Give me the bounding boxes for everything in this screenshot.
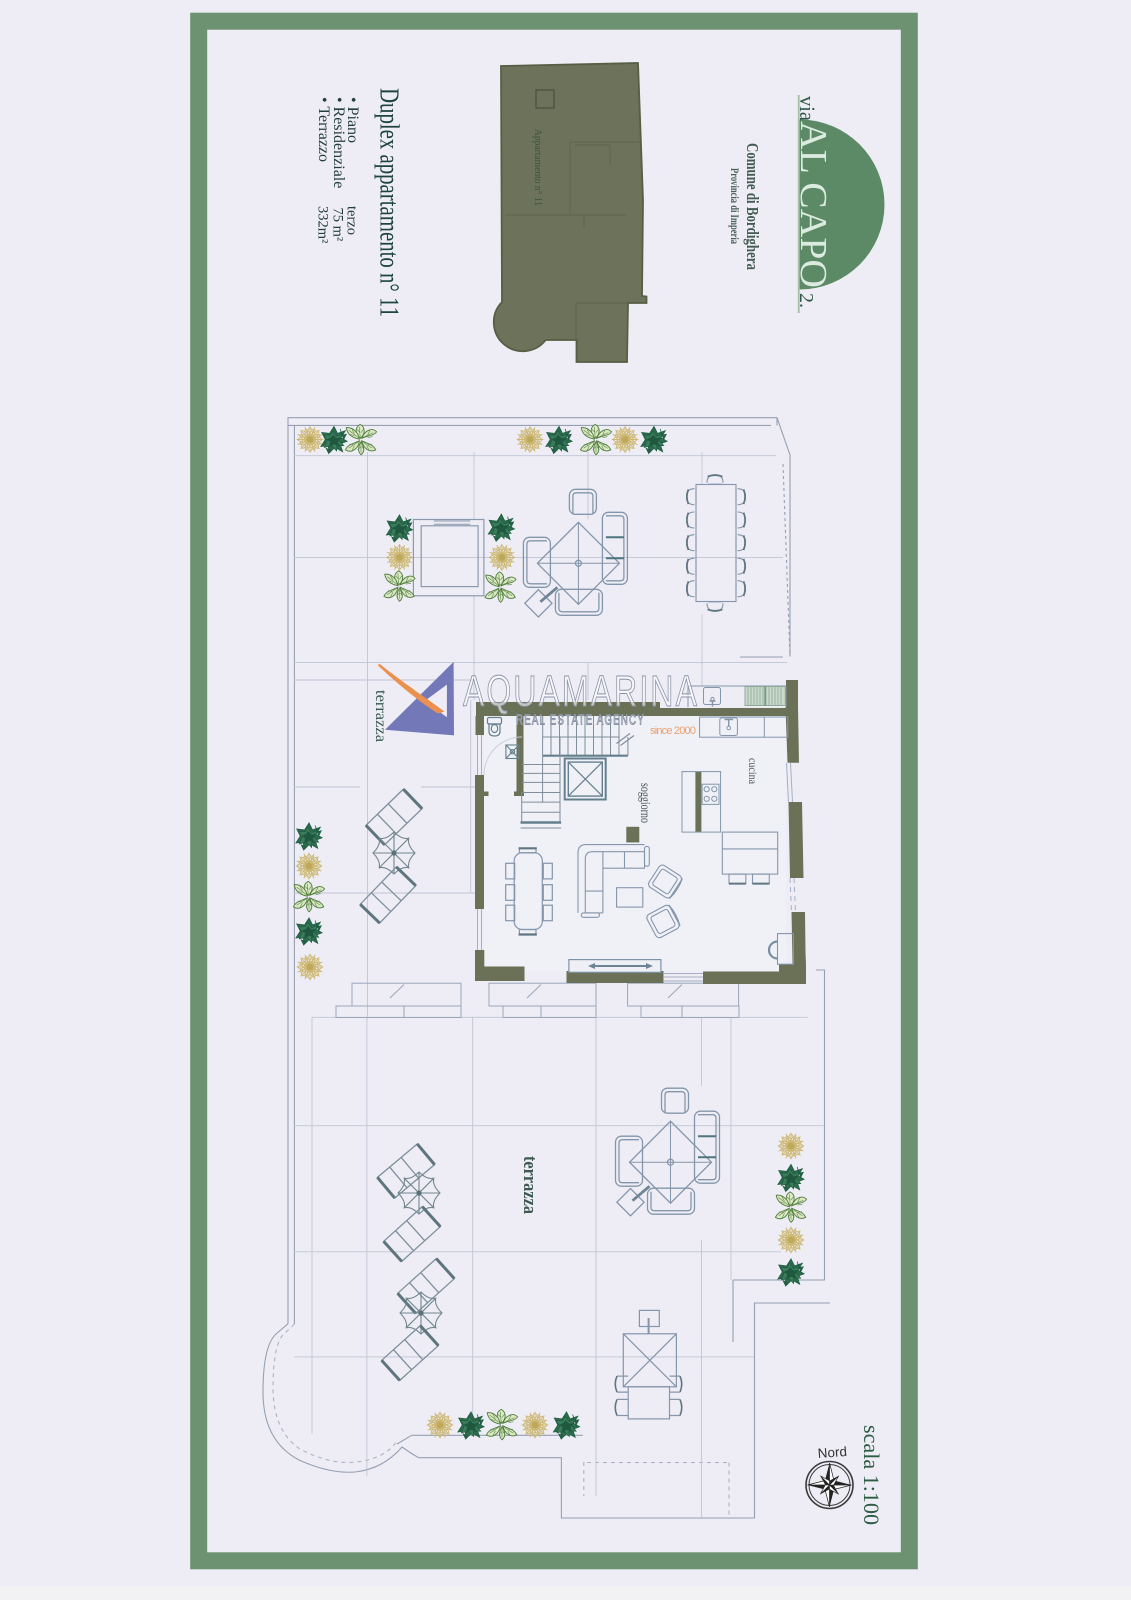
- svg-text:via: via: [795, 96, 820, 121]
- svg-text:• Terrazzo: • Terrazzo: [315, 97, 332, 162]
- svg-text:since 2000: since 2000: [650, 725, 696, 737]
- svg-text:Appartamento n° 11: Appartamento n° 11: [532, 129, 543, 206]
- svg-text:Comune di Bordighera: Comune di Bordighera: [743, 143, 762, 270]
- svg-text:AQUAMARINA: AQUAMARINA: [463, 667, 699, 716]
- svg-text:AL CAPO: AL CAPO: [792, 121, 834, 288]
- svg-text:terrazza: terrazza: [372, 690, 389, 742]
- svg-text:REAL ESTATE AGENCY: REAL ESTATE AGENCY: [516, 713, 645, 729]
- svg-text:Provincia di Imperia: Provincia di Imperia: [728, 168, 742, 244]
- svg-text:75 m²: 75 m²: [330, 208, 346, 242]
- svg-text:332m²: 332m²: [315, 206, 331, 244]
- svg-text:scala 1:100: scala 1:100: [859, 1425, 884, 1525]
- svg-text:terrazza: terrazza: [519, 1156, 540, 1214]
- svg-text:Duplex appartamento n° 11: Duplex appartamento n° 11: [375, 88, 405, 317]
- svg-text:cucina: cucina: [746, 758, 760, 785]
- svg-text:Nord: Nord: [817, 1444, 847, 1461]
- svg-text:soggiorno: soggiorno: [638, 783, 653, 823]
- svg-text:2.: 2.: [795, 293, 817, 308]
